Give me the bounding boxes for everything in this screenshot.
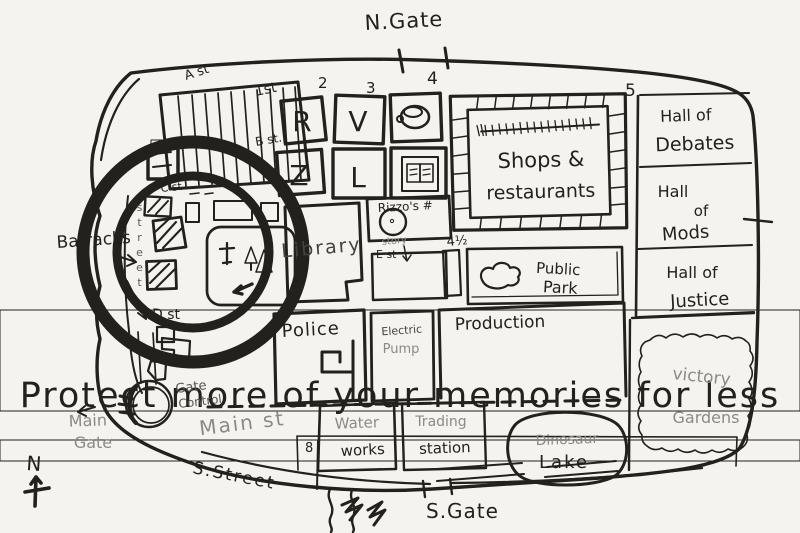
tree-park-block [186,201,295,305]
map-canvas: Protect more of your memories for less R… [0,0,800,533]
hall-of-debates-line1: Hall of [660,105,712,126]
south-gate-label: S.Gate [426,499,499,523]
police-label: Police [281,318,340,342]
second-street-label: 2 [318,74,328,92]
dinosaur-lake-line2: Lake [539,452,589,473]
main-gate-line1: Main [68,410,107,430]
shops-restaurants-block: Shops & restaurants [450,92,629,233]
fifth-street-label: 5 [625,81,636,101]
east-wall-tick [744,219,772,222]
electric-pump-line1: Electric [381,323,423,339]
shop-box-z-label: Z [289,159,308,192]
shop-box-l-label: L [350,161,366,194]
north-gate-label: N.Gate [364,7,444,35]
south-street-label: S.Street [191,458,277,494]
river-squiggles [329,489,385,532]
street-label-vertical: street [133,201,146,291]
fourth-street-label: 4 [427,69,438,89]
cross-marker-icon [220,243,234,264]
book-shop-box [391,148,446,198]
cup-shop-box [390,93,442,142]
production-label: Production [454,312,545,335]
park-cloud-icon [481,263,520,289]
open-book-icon [407,164,433,182]
four-half-street-label: 4½ [446,233,468,250]
dinosaur-lake: Dinosaur Lake [508,412,627,485]
water-works-line2: works [340,440,385,460]
eighth-street-label: 8 [305,441,313,456]
victory-gardens-line2: Gardens [673,408,740,427]
first-street-label: 1st [254,80,279,100]
shops-label-line1: Shops & [497,147,584,173]
shop-box-r-label: R [292,105,311,138]
dinosaur-lake-line1: Dinosaur [535,431,598,449]
water-works-line1: Water [334,413,380,433]
c-street-label: C st [160,180,183,195]
trading-station-line2: station [419,438,471,458]
b-street-label: B st. [254,131,283,149]
hall-of-mods-line1: Hall [658,182,689,201]
wall-inner-top-left [101,79,139,160]
public-park-line2: Park [543,277,579,298]
hand-drawn-city-map: Protect more of your memories for less R… [0,0,800,533]
c-street-dashes [190,193,213,194]
d-street-label: D st [152,307,181,323]
small-arrow-icon [234,284,252,294]
public-park-row: Public Park [443,247,623,304]
compass-letter: N [26,451,43,476]
rizzos-block: Rizzo's # story E st [367,196,451,300]
electric-pump-line2: Pump [383,342,420,357]
hall-of-mods-line3: Mods [661,221,710,245]
a-street-label: A st [183,62,211,84]
shops-label-line2: restaurants [486,180,596,205]
shop-box-v-label: V [348,105,367,138]
public-park-line1: Public [536,259,581,279]
hall-of-debates-line2: Debates [655,132,735,157]
main-gate-line2: Gate [74,433,112,452]
trading-station-line1: Trading [414,414,466,430]
hall-of-justice-line1: Hall of [666,263,718,282]
hall-column: Hall of Debates Hall of Mods Hall of Jus… [636,93,754,317]
letter-shop-boxes: R V Z L [277,93,446,198]
compass-north-icon: N [25,451,49,506]
third-street-label: 3 [366,79,376,97]
library-label: Library [280,234,362,263]
hall-of-justice-line2: Justice [669,288,730,312]
hall-of-mods-line2: of [694,202,709,220]
